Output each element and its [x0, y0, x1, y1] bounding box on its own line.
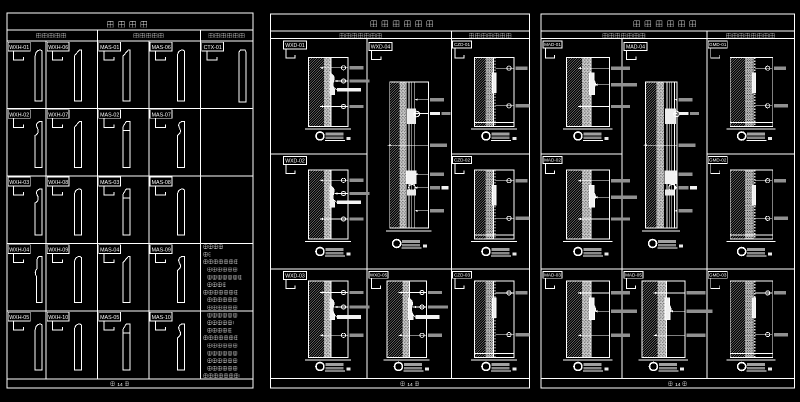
svg-text:MAS-04: MAS-04	[100, 247, 119, 253]
svg-text:MAS-08: MAS-08	[152, 180, 171, 186]
svg-text:MAS-10: MAS-10	[152, 315, 171, 321]
svg-text:14: 14	[675, 382, 681, 388]
svg-text:WXH-10: WXH-10	[48, 315, 68, 321]
svg-text:MAS-05: MAS-05	[100, 315, 119, 321]
svg-text:MAS-03: MAS-03	[100, 180, 119, 186]
svg-text:GMD-02: GMD-02	[709, 157, 727, 162]
svg-text:WXH-08: WXH-08	[48, 180, 68, 186]
svg-text:WXD-04: WXD-04	[371, 45, 391, 51]
svg-text:MAS-02: MAS-02	[100, 112, 119, 118]
svg-text:WXH-02: WXH-02	[9, 112, 29, 118]
svg-text:WXH-03: WXH-03	[9, 180, 29, 186]
svg-text:MAD-01: MAD-01	[544, 42, 561, 47]
svg-text:MAS-01: MAS-01	[100, 45, 119, 51]
svg-text:WXH-01: WXH-01	[9, 45, 29, 51]
svg-text:MAS-06: MAS-06	[152, 45, 171, 51]
svg-text:WXH-07: WXH-07	[48, 112, 68, 118]
svg-text:WXH-04: WXH-04	[9, 247, 29, 253]
svg-text:CZD-01: CZD-01	[454, 42, 471, 47]
svg-text:CZD-03: CZD-03	[454, 272, 471, 277]
svg-text:MAD-04: MAD-04	[626, 45, 645, 51]
svg-text:WXD-01: WXD-01	[285, 43, 305, 49]
svg-text:CZD-02: CZD-02	[454, 157, 471, 162]
svg-text:GMD-01: GMD-01	[709, 42, 727, 47]
svg-text:GMD-03: GMD-03	[709, 272, 727, 277]
svg-text:WXD-02: WXD-02	[285, 159, 305, 165]
svg-text:WXH-06: WXH-06	[48, 45, 68, 51]
svg-text:14: 14	[407, 382, 413, 388]
svg-text:MAD-05: MAD-05	[625, 272, 642, 277]
svg-text:MAS-09: MAS-09	[152, 247, 171, 253]
svg-text:14: 14	[117, 382, 123, 388]
svg-text:CTX-01: CTX-01	[204, 45, 222, 51]
svg-text:WXD-03: WXD-03	[285, 274, 305, 280]
svg-text:WXH-09: WXH-09	[48, 247, 68, 253]
svg-text:MAD-03: MAD-03	[544, 272, 561, 277]
svg-text:WXH-05: WXH-05	[9, 315, 29, 321]
svg-text:WXD-05: WXD-05	[370, 272, 388, 277]
svg-text:MAS-07: MAS-07	[152, 112, 171, 118]
svg-text:MAD-02: MAD-02	[544, 157, 561, 162]
